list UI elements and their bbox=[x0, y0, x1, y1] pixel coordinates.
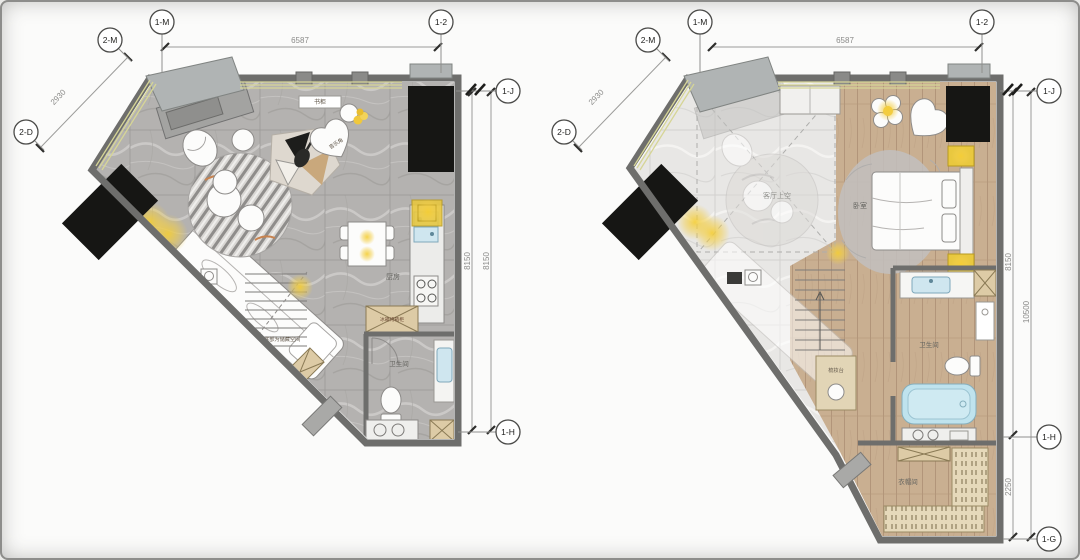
dim-top-upper: 6587 bbox=[836, 36, 854, 45]
wall-column-1 bbox=[296, 72, 312, 85]
dim-right-outer-lower: 8150 bbox=[482, 252, 491, 270]
room-label-bedroom: 卧室 bbox=[853, 201, 867, 210]
dressing-stool bbox=[828, 384, 844, 400]
parapet-lower bbox=[410, 64, 452, 78]
room-label-appliance-cabinet: 冰箱烤箱柜 bbox=[380, 316, 404, 323]
round-table-2 bbox=[213, 170, 237, 194]
grid-bubble-1M-upper-label: 1-M bbox=[693, 17, 708, 27]
room-label-bath-lower: 卫生间 bbox=[389, 359, 409, 368]
grid-bubble-2D-lower-label: 2-D bbox=[19, 127, 33, 137]
side-table bbox=[238, 205, 264, 231]
grid-bubble-1M-upper: 1-M bbox=[688, 10, 712, 34]
pillow-2 bbox=[942, 214, 956, 242]
grid-bubble-12-lower-label: 1-2 bbox=[435, 17, 448, 27]
room-label-closet: 衣帽间 bbox=[898, 477, 918, 486]
grid-bubble-2D-lower: 2-D bbox=[14, 120, 38, 144]
grid-bubble-2M-upper: 2-M bbox=[636, 28, 660, 52]
grid-bubble-2M-upper-label: 2-M bbox=[641, 35, 656, 45]
room-label-cabinet: 书柜 bbox=[314, 98, 326, 106]
wall-column-3 bbox=[834, 72, 850, 85]
floor-plan-lower-level: 音乐角 书柜 厨房 冰箱烤箱柜 bbox=[14, 10, 520, 460]
black-column-b-upper bbox=[946, 86, 990, 142]
grid-bubble-12-lower: 1-2 bbox=[429, 10, 453, 34]
pillow bbox=[942, 180, 956, 208]
grid-bubble-12-upper: 1-2 bbox=[970, 10, 994, 34]
wardrobe-right bbox=[952, 448, 988, 506]
grid-bubble-1H-lower: 1-H bbox=[496, 420, 520, 444]
washbasin bbox=[437, 348, 452, 382]
grid-bubble-1M-lower-label: 1-M bbox=[155, 17, 170, 27]
dim-diag-upper: 2930 bbox=[587, 87, 606, 106]
wall-column-4 bbox=[890, 72, 906, 85]
room-label-void: 客厅上空 bbox=[763, 191, 791, 200]
dressing-table: 梳妆台 bbox=[816, 356, 856, 410]
room-label-bath-upper: 卫生间 bbox=[919, 340, 939, 349]
floor-plan-upper-level: 客厅上空 卧室 bbox=[552, 10, 1061, 551]
bed bbox=[872, 168, 973, 254]
wardrobe-bottom bbox=[884, 506, 984, 532]
grid-bubble-2D-upper-label: 2-D bbox=[557, 127, 571, 137]
parapet-upper bbox=[948, 64, 990, 78]
room-label-entry-cabinet: 入口鞋柜 bbox=[269, 366, 289, 386]
grid-bubble-1J-lower: 1-J bbox=[496, 79, 520, 103]
grid-bubble-1H-upper: 1-H bbox=[1037, 425, 1061, 449]
round-table bbox=[232, 129, 254, 151]
grid-bubble-1M-lower: 1-M bbox=[150, 10, 174, 34]
niche-box-upper bbox=[727, 272, 742, 284]
appliance-cabinet: 冰箱烤箱柜 bbox=[366, 306, 418, 332]
toilet-upper bbox=[945, 356, 980, 376]
grid-bubble-1J-upper-label: 1-J bbox=[1043, 86, 1055, 96]
bathtub bbox=[902, 384, 976, 424]
grid-bubble-1J-upper: 1-J bbox=[1037, 79, 1061, 103]
grid-bubble-2D-upper: 2-D bbox=[552, 120, 576, 144]
dim-diag-lower: 2930 bbox=[49, 87, 68, 106]
floor-plans-canvas: 音乐角 书柜 厨房 冰箱烤箱柜 bbox=[0, 0, 1080, 560]
dim-right-outer-upper: 10500 bbox=[1022, 300, 1031, 323]
storage-column bbox=[976, 302, 994, 340]
closet-hatch bbox=[898, 447, 950, 461]
grid-bubble-1G-upper: 1-G bbox=[1037, 527, 1061, 551]
dining-set bbox=[340, 222, 394, 266]
black-column-b-lower bbox=[408, 86, 454, 172]
grid-bubble-1J-lower-label: 1-J bbox=[502, 86, 514, 96]
grid-bubble-1H-upper-label: 1-H bbox=[1042, 432, 1056, 442]
dim-right-inner-upper: 8150 bbox=[1004, 253, 1013, 271]
toilet bbox=[381, 387, 401, 423]
room-label-kitchen: 厨房 bbox=[386, 272, 400, 281]
dim-right-inner-lower: 8150 bbox=[463, 252, 472, 270]
floor-plan-sheet: 音乐角 书柜 厨房 冰箱烤箱柜 bbox=[0, 0, 1080, 560]
grid-bubble-1G-upper-label: 1-G bbox=[1042, 534, 1056, 544]
headboard bbox=[960, 168, 973, 254]
grid-bubble-2M-lower: 2-M bbox=[98, 28, 122, 52]
dim-top-lower: 6587 bbox=[291, 36, 309, 45]
grid-bubble-2M-lower-label: 2-M bbox=[103, 35, 118, 45]
bath-storage-hatch bbox=[430, 420, 454, 441]
dim-right-lower-upper: 2250 bbox=[1004, 478, 1013, 496]
room-label-dresser: 梳妆台 bbox=[828, 366, 844, 374]
shelf-hatch-upper bbox=[974, 270, 996, 296]
grid-bubble-12-upper-label: 1-2 bbox=[976, 17, 989, 27]
wall-column-2 bbox=[352, 72, 368, 85]
grid-bubble-1H-lower-label: 1-H bbox=[501, 427, 515, 437]
